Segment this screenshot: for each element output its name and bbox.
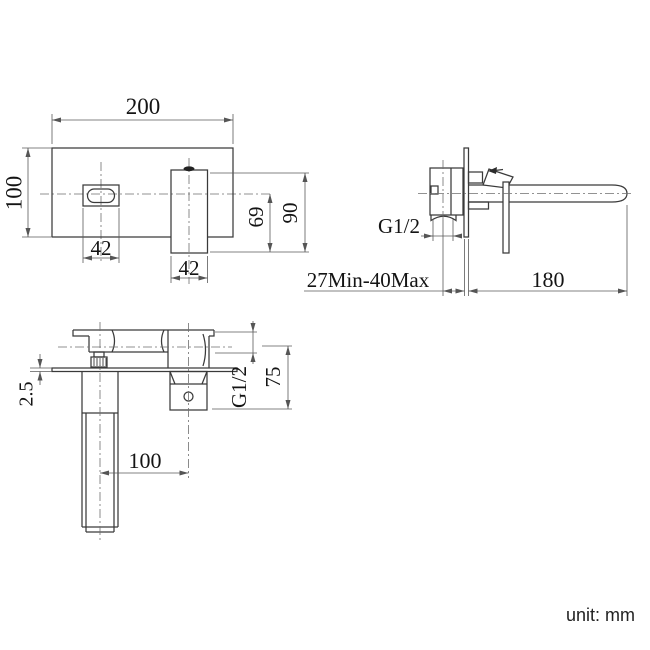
side-bottom-flange [469, 202, 489, 209]
dim-handle-width: 42 [171, 256, 208, 283]
top-plate [52, 368, 237, 372]
dim-front-width: 200 [52, 94, 233, 144]
front-view: 200 100 42 42 69 90 [1, 94, 309, 284]
dim-label-g12-top: G1/2 [227, 366, 251, 408]
dim-label-200: 200 [126, 94, 161, 119]
dim-label-42b: 42 [179, 256, 200, 280]
front-plate [52, 148, 233, 237]
handle-indicator-dot [184, 166, 195, 171]
dim-69-90: 69 90 [210, 173, 309, 252]
unit-label: unit: mm [566, 605, 635, 625]
dim-front-height: 100 [1, 148, 52, 237]
dim-label-180: 180 [532, 267, 565, 292]
side-top-flange [469, 172, 483, 183]
dim-side-thread: G1/2 [378, 214, 462, 241]
dim-label-100b: 100 [129, 448, 162, 473]
dim-spout-to-valve: 100 [100, 448, 189, 473]
side-wall-plate [464, 148, 469, 237]
dim-plate-thickness: 2.5 [16, 354, 52, 407]
side-lever [483, 167, 513, 253]
top-body [73, 330, 214, 368]
dim-label-69: 69 [244, 207, 268, 228]
dim-label-g12-side: G1/2 [378, 214, 420, 238]
front-spout-opening [83, 185, 119, 206]
dim-label-90: 90 [278, 203, 302, 224]
dim-label-2-5: 2.5 [16, 382, 38, 407]
technical-drawing: 200 100 42 42 69 90 [0, 0, 650, 650]
dim-label-42a: 42 [91, 236, 112, 260]
drawing-page: 200 100 42 42 69 90 [0, 0, 650, 650]
dim-label-wall-range: 27Min-40Max [307, 268, 430, 292]
dim-body-depth: 75 [212, 346, 292, 409]
side-view: G1/2 27Min-40Max 180 [304, 148, 634, 296]
side-valve-body [430, 168, 463, 221]
dim-label-100: 100 [1, 176, 26, 211]
dim-label-75: 75 [261, 367, 285, 388]
dim-top-thread: G1/2 [215, 321, 257, 408]
top-view: 2.5 100 G1/2 75 [16, 321, 292, 540]
